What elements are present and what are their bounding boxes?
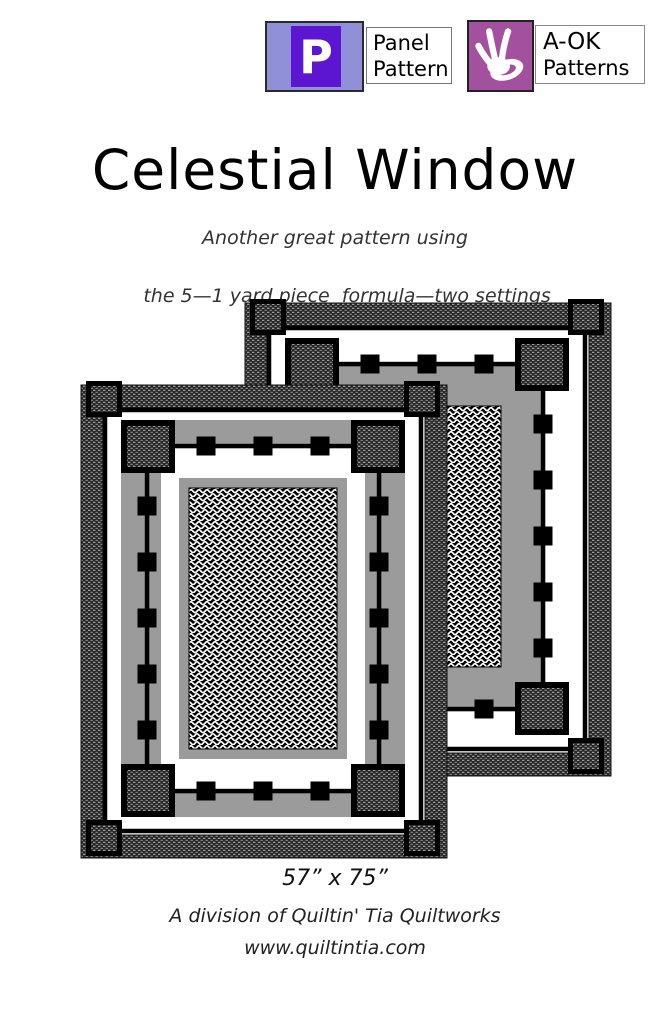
quilt-size-label: 57” x 75” xyxy=(0,866,670,891)
website-text: www.quiltintia.com xyxy=(0,937,670,959)
quilt-front xyxy=(81,381,447,858)
division-text: A division of Quiltin' Tia Quiltworks xyxy=(0,905,670,927)
pattern-cover-page: P Panel Pattern A-OK Patterns Celestial … xyxy=(0,0,670,1030)
quilt-front-center-panel xyxy=(189,488,337,749)
